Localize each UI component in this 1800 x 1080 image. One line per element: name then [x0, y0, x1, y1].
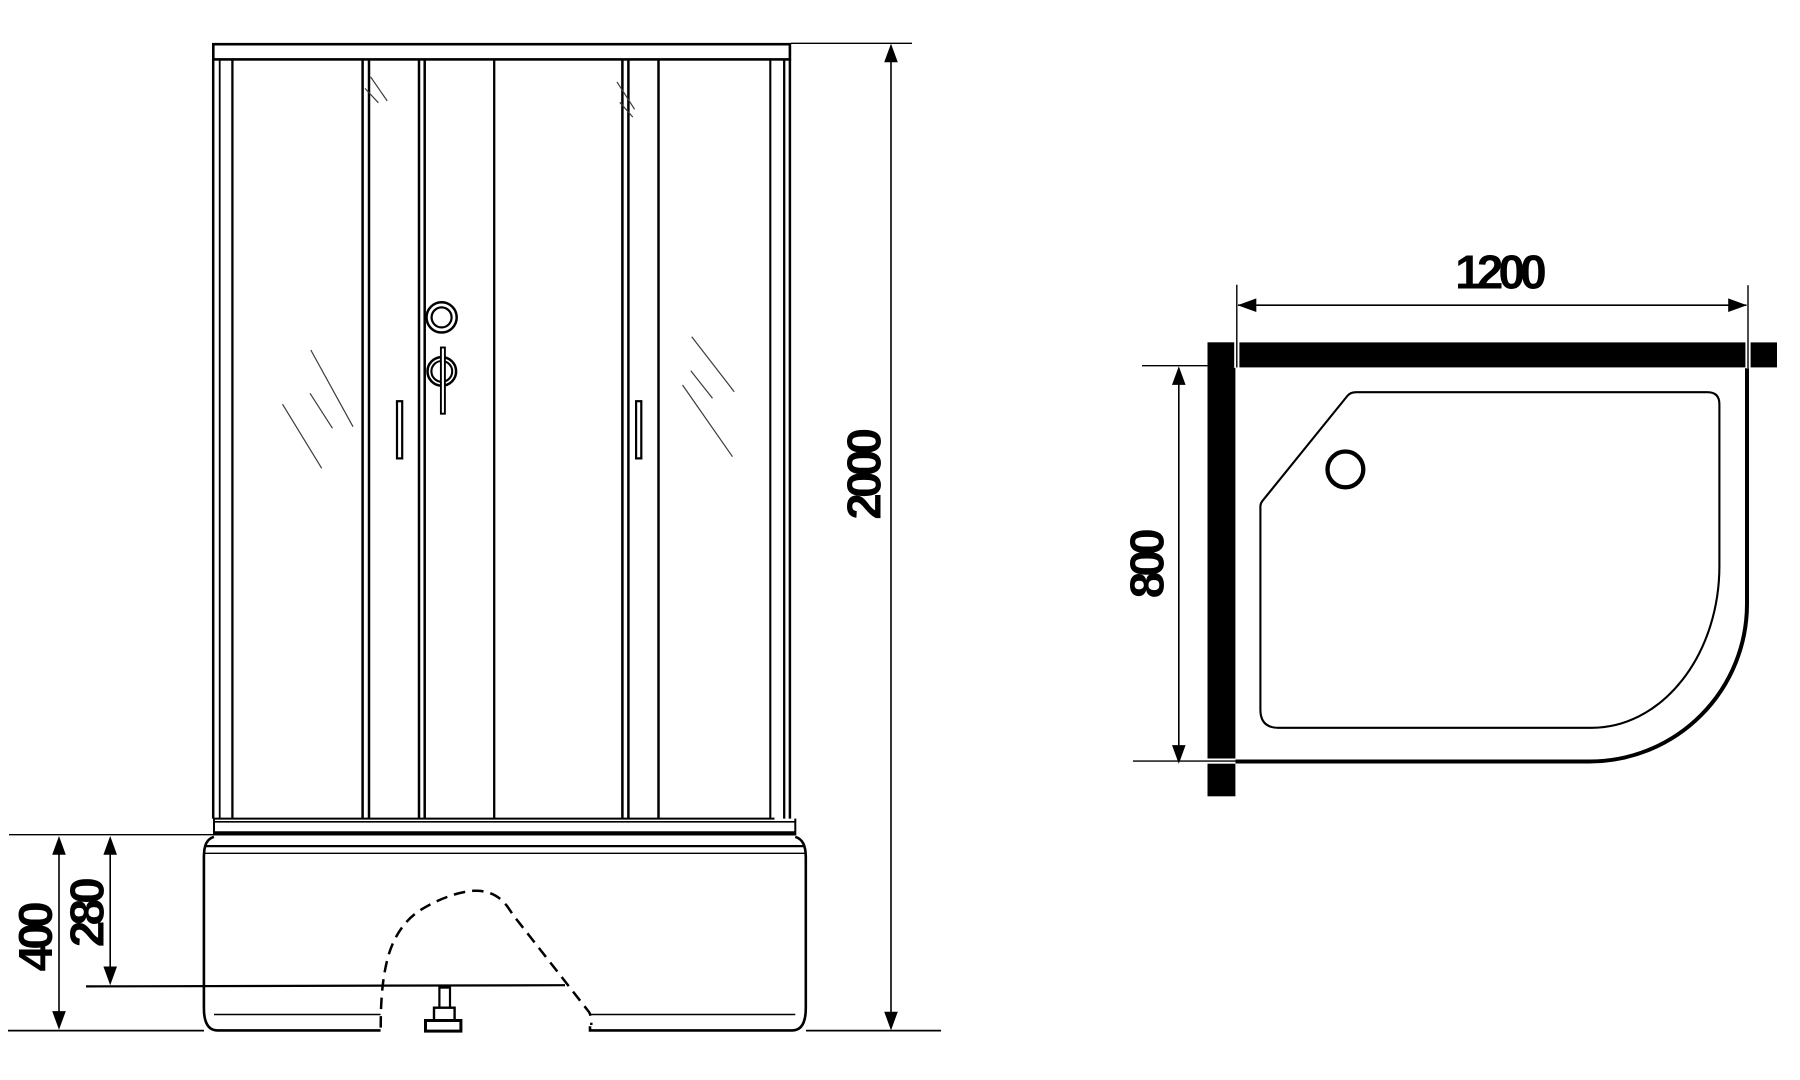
svg-text:280: 280: [62, 879, 115, 947]
svg-text:1200: 1200: [1455, 247, 1545, 300]
svg-text:400: 400: [10, 903, 63, 971]
svg-text:800: 800: [1122, 530, 1175, 598]
svg-text:2000: 2000: [839, 430, 892, 520]
